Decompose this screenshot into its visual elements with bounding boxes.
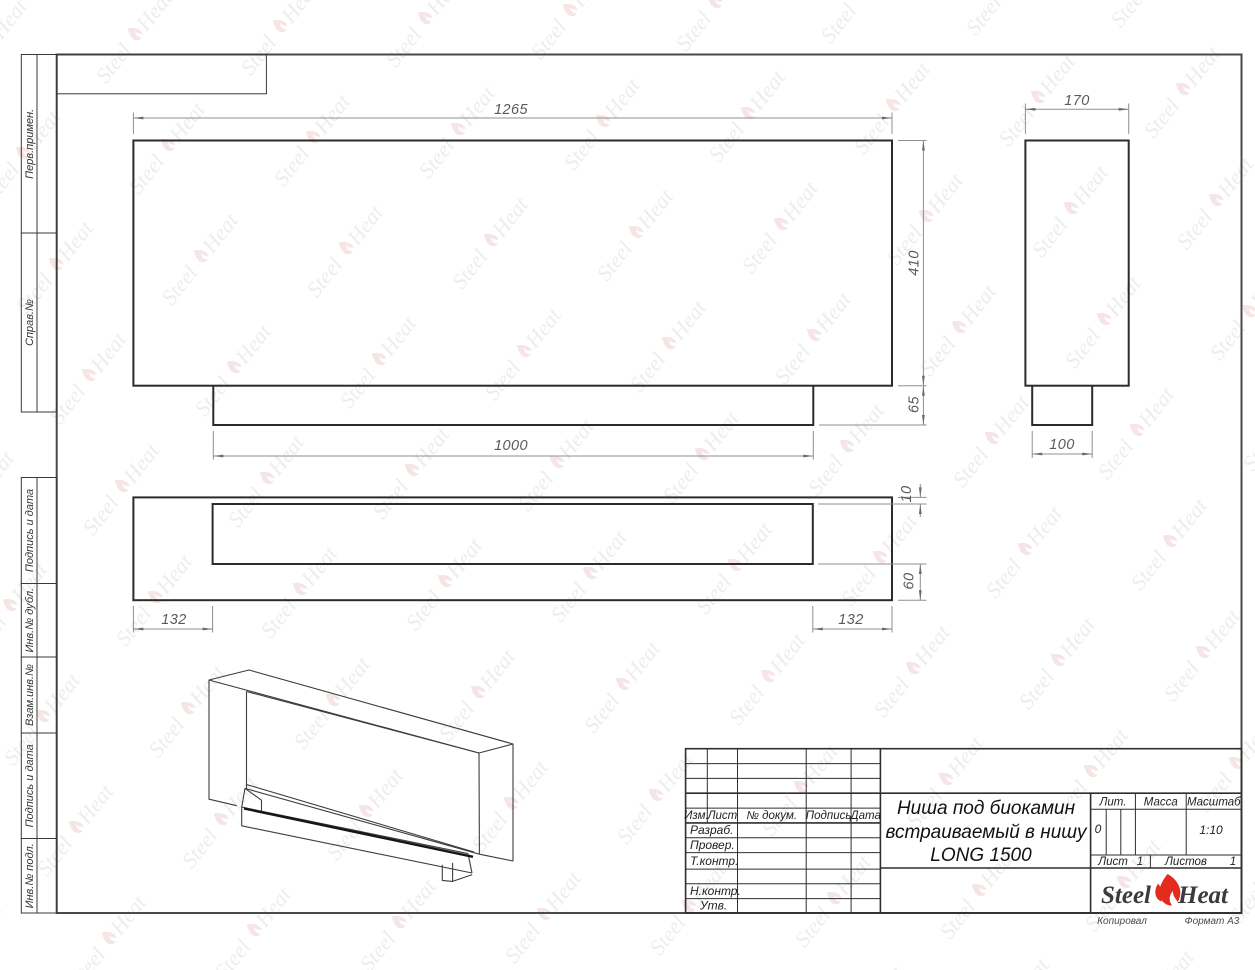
svg-text:Лит.: Лит. <box>1099 797 1127 809</box>
svg-text:Изм.: Изм. <box>684 810 709 822</box>
svg-text:Масштаб: Масштаб <box>1187 797 1241 809</box>
svg-text:170: 170 <box>1064 93 1089 109</box>
svg-text:Инв.№ дубл.: Инв.№ дубл. <box>24 588 36 653</box>
svg-text:1: 1 <box>1230 856 1236 868</box>
svg-text:Дата: Дата <box>849 810 881 822</box>
svg-text:Справ.№: Справ.№ <box>24 299 36 346</box>
svg-text:Копировал: Копировал <box>1097 916 1147 927</box>
svg-text:Т.контр.: Т.контр. <box>690 854 738 868</box>
svg-text:№ докум.: № докум. <box>746 810 797 822</box>
svg-text:Подпись: Подпись <box>806 810 852 822</box>
svg-text:Steel: Steel <box>1101 882 1151 909</box>
svg-text:встраиваемый в нишу: встраиваемый в нишу <box>885 822 1088 843</box>
svg-text:Лист: Лист <box>1097 856 1128 868</box>
svg-text:1:10: 1:10 <box>1199 823 1223 837</box>
svg-text:132: 132 <box>161 612 186 628</box>
svg-text:1: 1 <box>1137 856 1143 868</box>
svg-text:Подпись и дата: Подпись и дата <box>24 489 36 572</box>
svg-text:Формат А3: Формат А3 <box>1185 916 1240 927</box>
svg-text:Подпись и дата: Подпись и дата <box>24 744 36 827</box>
svg-text:60: 60 <box>902 573 918 590</box>
svg-text:Взам.инв.№: Взам.инв.№ <box>24 664 36 726</box>
svg-text:Н.контр.: Н.контр. <box>690 884 741 898</box>
svg-text:Разраб.: Разраб. <box>690 823 733 837</box>
svg-text:1000: 1000 <box>494 438 528 454</box>
svg-text:Ниша под биокамин: Ниша под биокамин <box>897 798 1076 819</box>
svg-text:Листов: Листов <box>1164 856 1207 868</box>
svg-text:Перв.примен.: Перв.примен. <box>24 109 36 179</box>
svg-text:Провер.: Провер. <box>690 838 735 852</box>
svg-text:410: 410 <box>907 250 923 275</box>
svg-text:Heat: Heat <box>1177 882 1229 909</box>
svg-text:LONG 1500: LONG 1500 <box>930 845 1032 866</box>
svg-text:Утв.: Утв. <box>699 899 727 913</box>
svg-text:100: 100 <box>1049 437 1074 453</box>
svg-text:65: 65 <box>907 396 923 413</box>
svg-text:0: 0 <box>1095 822 1102 836</box>
svg-text:10: 10 <box>899 486 915 503</box>
svg-text:1265: 1265 <box>494 102 528 118</box>
svg-text:Инв.№ подл.: Инв.№ подл. <box>24 843 36 908</box>
svg-text:Лист: Лист <box>707 810 738 822</box>
svg-text:132: 132 <box>838 612 863 628</box>
svg-text:Масса: Масса <box>1144 797 1178 809</box>
